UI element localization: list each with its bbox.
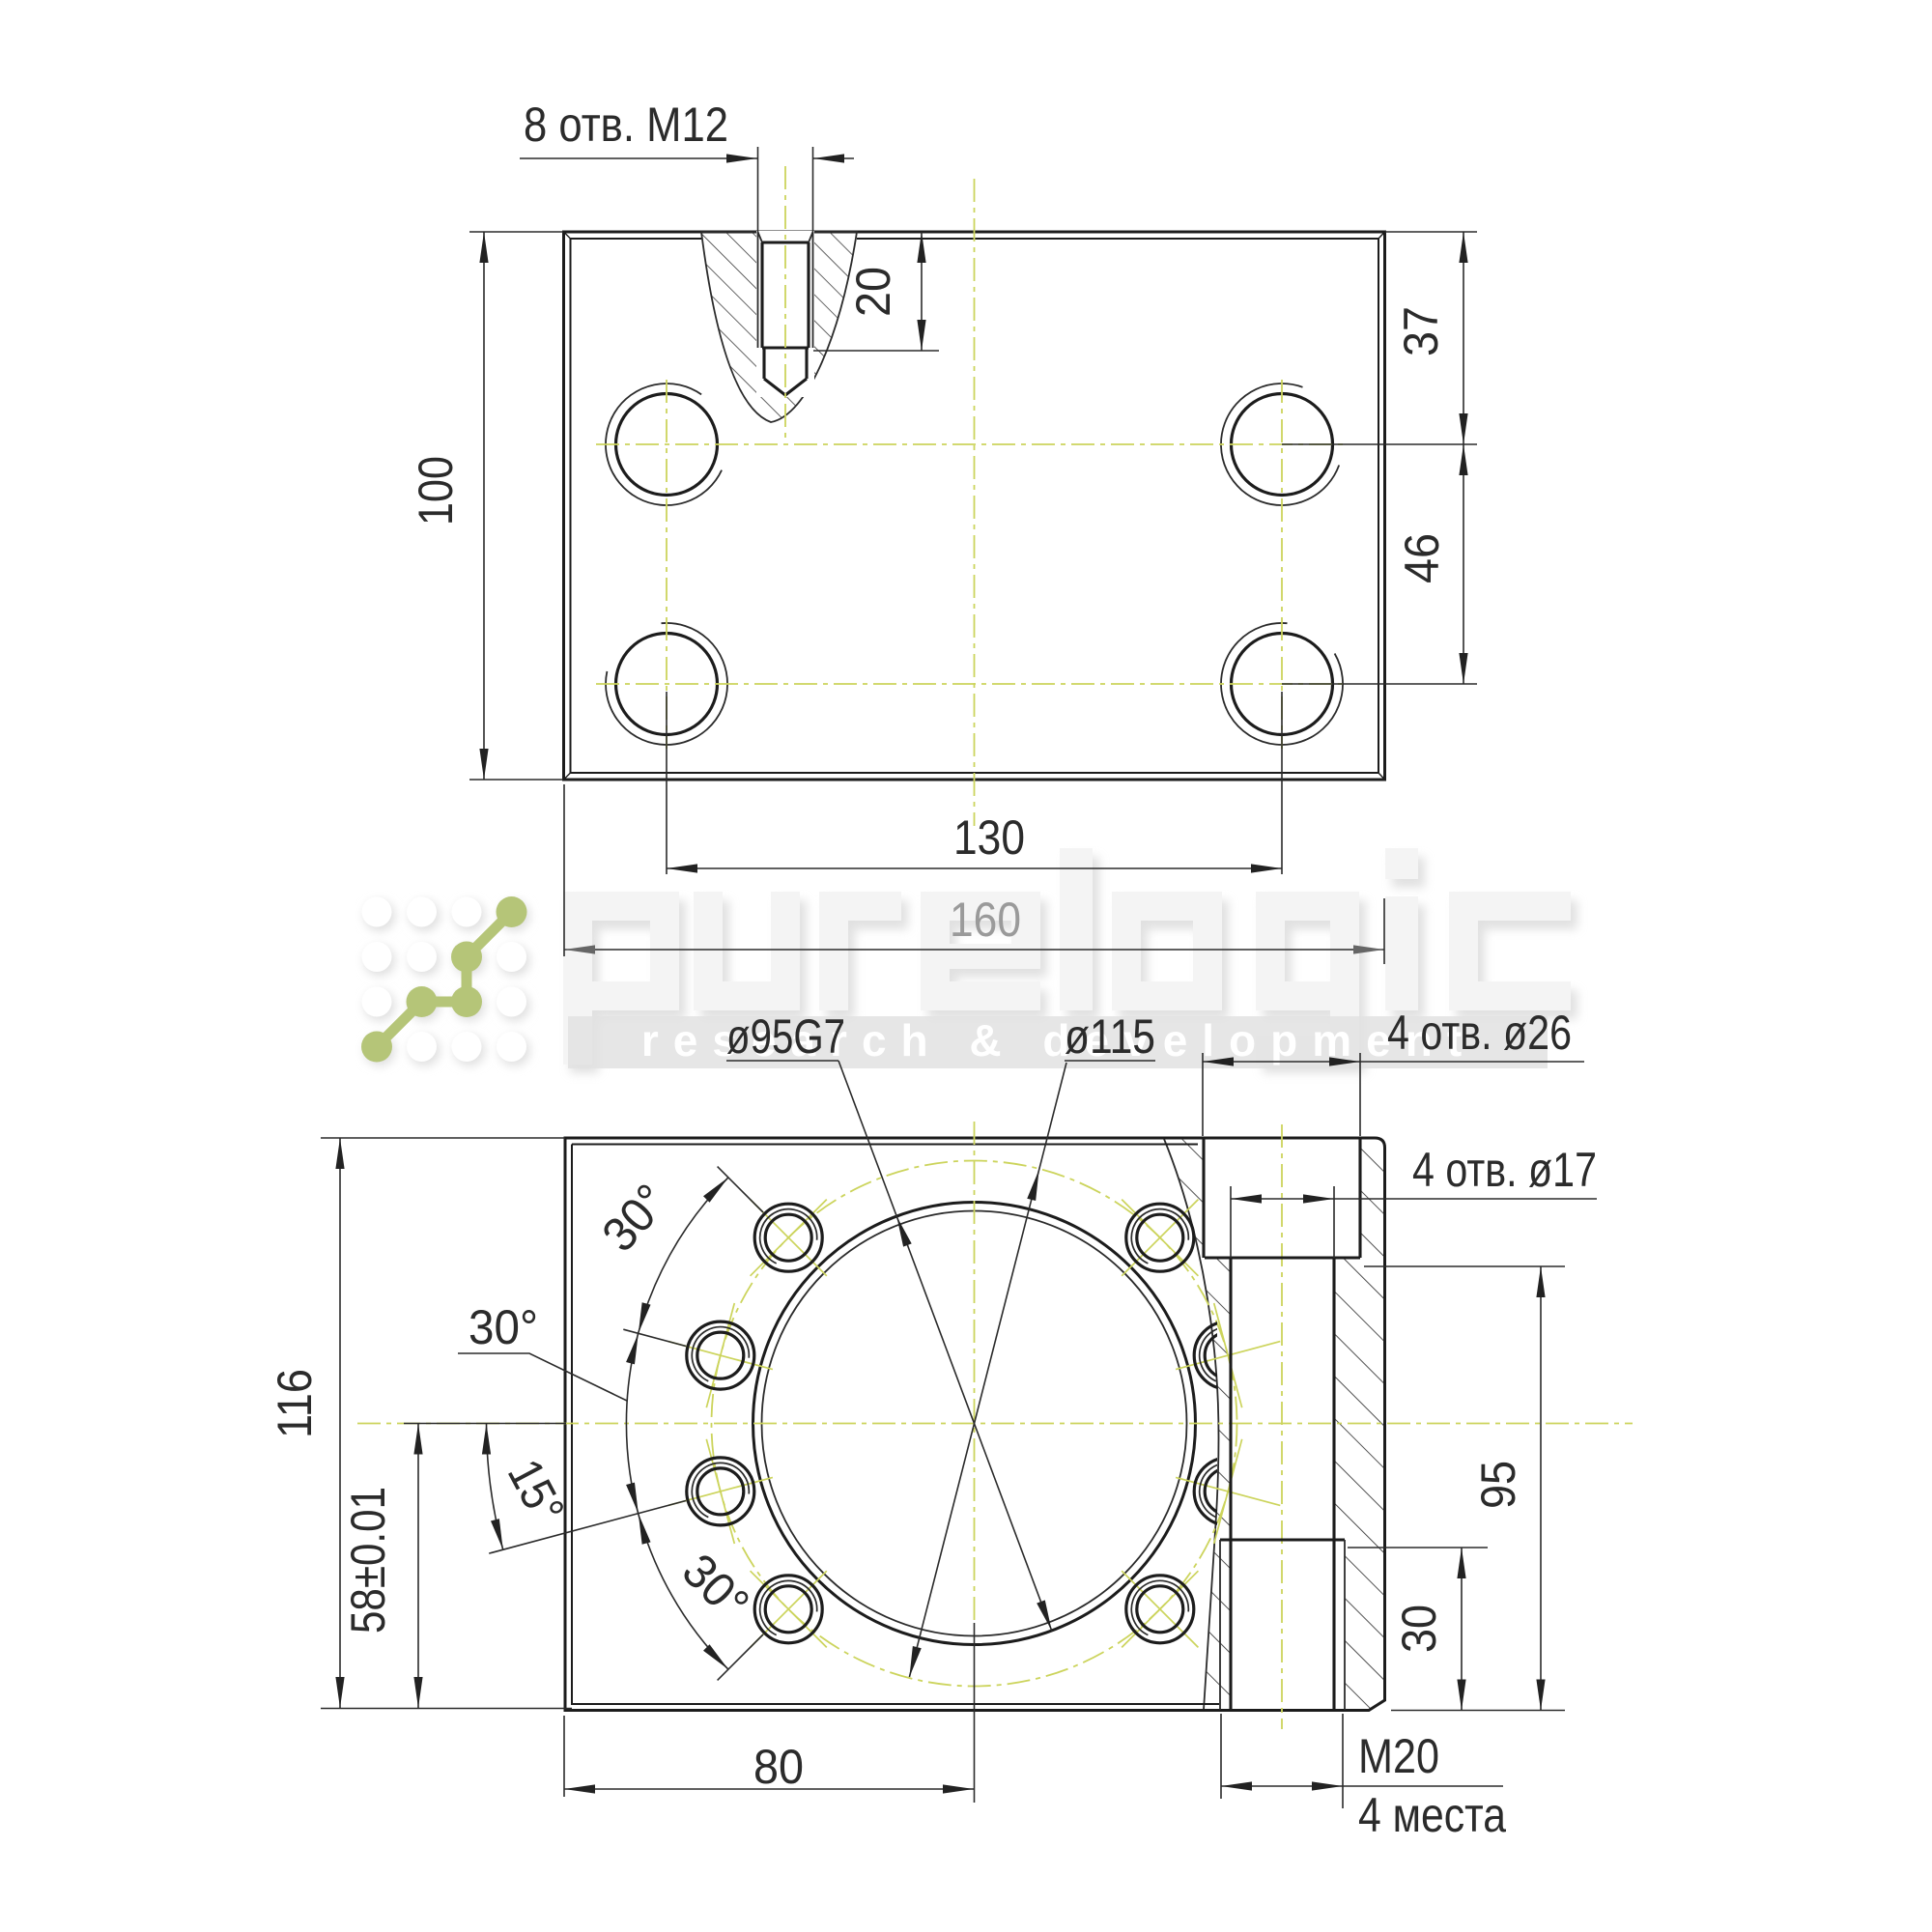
svg-text:100: 100 — [409, 456, 463, 526]
svg-text:30°: 30° — [591, 1174, 678, 1262]
svg-text:4 места: 4 места — [1358, 1788, 1506, 1842]
svg-text:95: 95 — [1471, 1461, 1525, 1509]
svg-text:46: 46 — [1395, 533, 1449, 583]
svg-text:4 отв. ø17: 4 отв. ø17 — [1412, 1143, 1597, 1197]
svg-text:ø115: ø115 — [1065, 1009, 1155, 1064]
svg-text:M20: M20 — [1358, 1729, 1439, 1783]
svg-text:4 отв. ø26: 4 отв. ø26 — [1387, 1006, 1572, 1060]
svg-text:30°: 30° — [469, 1300, 538, 1354]
svg-text:58±0.01: 58±0.01 — [341, 1487, 395, 1634]
svg-text:20: 20 — [846, 267, 900, 317]
svg-text:80: 80 — [753, 1740, 804, 1794]
svg-text:37: 37 — [1394, 306, 1448, 356]
svg-text:160: 160 — [950, 893, 1021, 947]
svg-text:130: 130 — [953, 810, 1025, 865]
svg-text:8 отв. М12: 8 отв. М12 — [524, 98, 728, 152]
svg-text:116: 116 — [268, 1369, 322, 1438]
svg-text:30: 30 — [1392, 1605, 1446, 1653]
svg-text:15°: 15° — [497, 1451, 575, 1533]
svg-text:ø95G7: ø95G7 — [726, 1009, 845, 1064]
